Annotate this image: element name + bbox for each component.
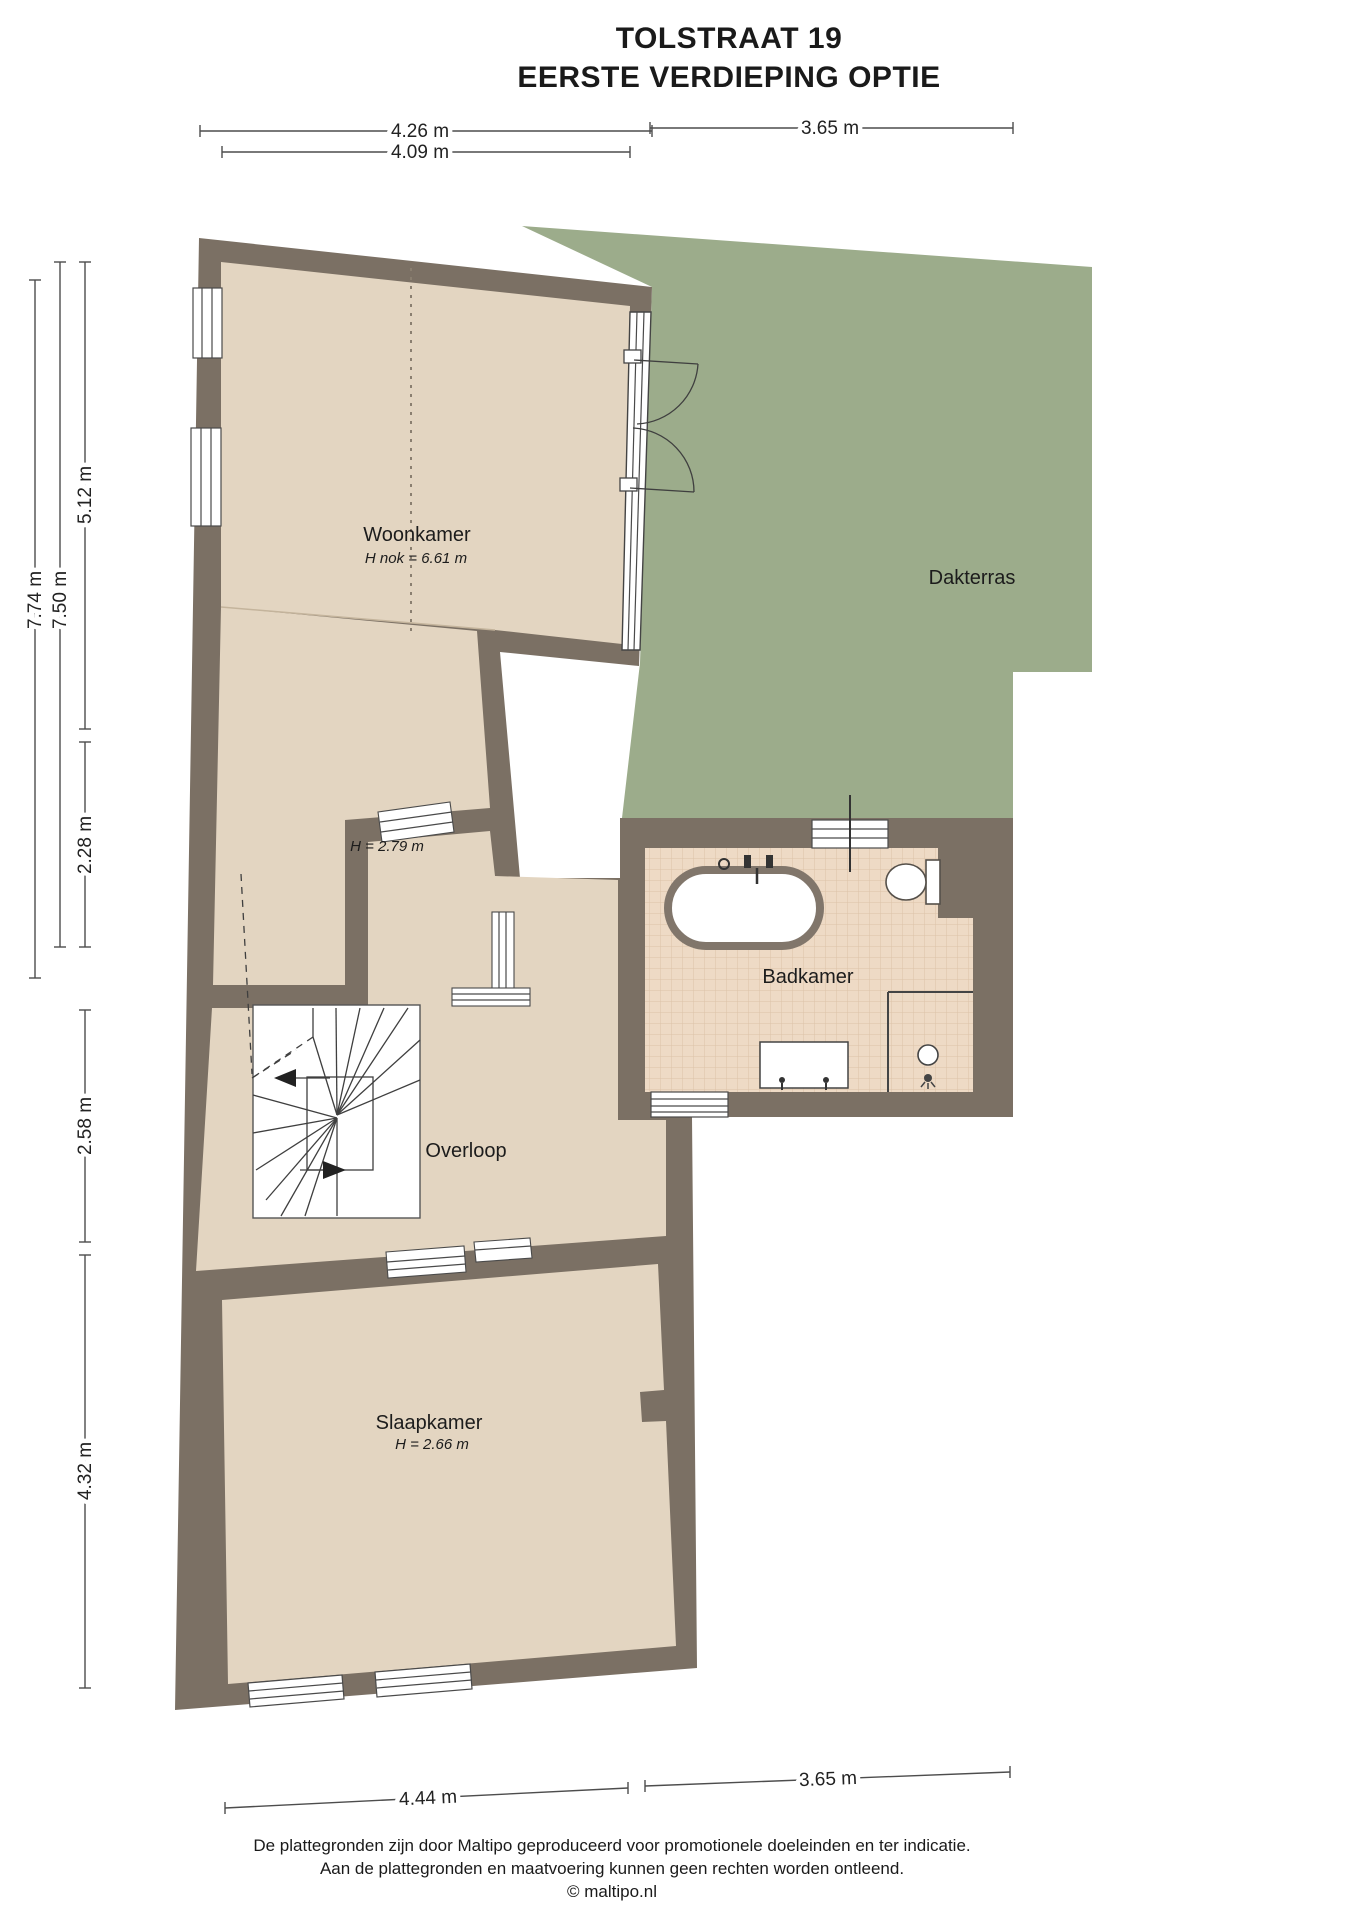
dimension-left-total: 7.74 m — [25, 280, 46, 978]
room-label-overloop: Overloop — [425, 1140, 506, 1162]
room-label-slaapkamer: Slaapkamer — [376, 1412, 483, 1434]
svg-text:2.28 m: 2.28 m — [75, 816, 96, 874]
vanity-sink — [760, 1042, 848, 1090]
dimension-left-lower: 4.32 m — [75, 1255, 96, 1688]
svg-text:5.12 m: 5.12 m — [75, 466, 96, 524]
toilet — [886, 860, 940, 904]
page-title-floor: EERSTE VERDIEPING OPTIE — [517, 61, 940, 94]
doorway-slaapkamer — [386, 1246, 466, 1278]
svg-text:4.26 m: 4.26 m — [391, 121, 449, 142]
room-note-woonkamer: H nok = 6.61 m — [365, 550, 467, 567]
footer-copyright: © maltipo.nl — [567, 1882, 657, 1901]
svg-text:4.44 m: 4.44 m — [398, 1787, 457, 1811]
dimension-left-inner-total: 7.50 m — [50, 262, 71, 947]
shower-drain — [918, 1045, 938, 1065]
dimension-top-inner: 4.09 m — [222, 142, 630, 163]
svg-text:3.65 m: 3.65 m — [801, 118, 859, 139]
woonkamer-west-window-2 — [191, 428, 221, 526]
svg-text:4.32 m: 4.32 m — [75, 1442, 96, 1500]
svg-text:2.58 m: 2.58 m — [75, 1097, 96, 1155]
dimension-left-upper: 5.12 m — [75, 262, 96, 729]
doorway-corridor-south — [474, 1238, 532, 1262]
dimension-bottom-right: 3.65 m — [645, 1766, 1010, 1792]
dimension-bottom-left: 4.44 m — [225, 1782, 628, 1814]
svg-text:7.74 m: 7.74 m — [25, 571, 46, 629]
dimension-top-outer: 4.26 m — [200, 121, 652, 142]
shower-head — [924, 1074, 932, 1082]
dimension-left-stair: 2.58 m — [75, 1010, 96, 1242]
bathtub-tap-2 — [766, 855, 773, 868]
dimension-top-right: 3.65 m — [650, 118, 1013, 139]
woonkamer-floor — [221, 262, 630, 644]
dimension-left-mid: 2.28 m — [75, 742, 96, 947]
page-title-address: TOLSTRAAT 19 — [616, 22, 843, 55]
doorway-overloop-corridor — [492, 912, 514, 992]
woonkamer-west-window-1 — [193, 288, 222, 358]
svg-text:3.65 m: 3.65 m — [799, 1768, 858, 1791]
room-label-woonkamer: Woonkamer — [363, 524, 471, 546]
footer-disclaimer-1: De plattegronden zijn door Maltipo gepro… — [253, 1836, 970, 1855]
bathtub-tap-1 — [744, 855, 751, 868]
svg-text:7.50 m: 7.50 m — [50, 571, 71, 629]
room-label-badkamer: Badkamer — [762, 966, 853, 988]
room-note-woonkamer-lower: H = 2.79 m — [350, 838, 424, 855]
slaapkamer-floor — [222, 1264, 676, 1684]
floorplan-page: TOLSTRAAT 19 EERSTE VERDIEPING OPTIE — [0, 0, 1358, 1920]
doorway-overloop-north — [452, 988, 530, 1006]
badkamer-south-window — [651, 1092, 728, 1117]
svg-text:4.09 m: 4.09 m — [391, 142, 449, 163]
room-note-slaapkamer: H = 2.66 m — [395, 1436, 469, 1453]
footer-disclaimer-2: Aan de plattegronden en maatvoering kunn… — [320, 1859, 904, 1878]
room-label-dakterras: Dakterras — [929, 567, 1016, 589]
floorplan-canvas: TOLSTRAAT 19 EERSTE VERDIEPING OPTIE — [0, 0, 1358, 1920]
